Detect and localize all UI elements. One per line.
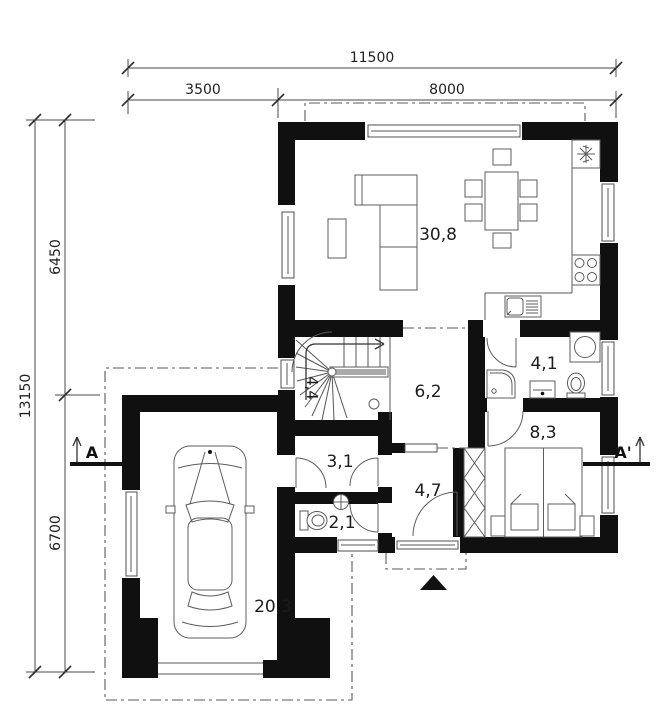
- car: [166, 446, 254, 638]
- living-room-furniture: [328, 140, 600, 320]
- entrance-arrow: [420, 575, 447, 590]
- kitchen-sink: [505, 296, 541, 317]
- wash-basin: [333, 494, 349, 510]
- window-kitchen-east: [602, 184, 614, 241]
- chair: [493, 149, 511, 165]
- pillow: [548, 504, 575, 530]
- floor-plan-canvas: 11500 3500 8000 13150 6450 6700: [0, 0, 656, 720]
- window-stairs-west: [281, 360, 294, 388]
- bath-sink: [530, 381, 555, 398]
- chair: [493, 233, 511, 248]
- toilet-wc: [300, 511, 327, 530]
- nightstand: [580, 516, 594, 536]
- room-label-bedroom: 8,3: [529, 423, 556, 443]
- stair-handrail: [328, 367, 388, 377]
- room-label-utility: 3,1: [326, 452, 353, 472]
- coffee-table: [328, 219, 346, 258]
- dim-top-seg-2: 8000: [429, 82, 465, 98]
- bedroom-furniture: [464, 448, 594, 537]
- room-label-hall: 6,2: [414, 382, 441, 402]
- room-label-bathroom: 4,1: [530, 354, 557, 374]
- chair: [520, 180, 537, 197]
- dim-top-seg-1: 3500: [185, 82, 221, 98]
- sofa: [355, 175, 417, 290]
- porch-outline: [386, 553, 466, 569]
- floor-plan-drawing: 11500 3500 8000 13150 6450 6700: [0, 0, 656, 720]
- dining-set: [465, 149, 537, 248]
- window-living-west: [282, 212, 294, 278]
- chair: [465, 180, 482, 197]
- side-mirror: [166, 506, 175, 513]
- stair-newel-post: [369, 399, 379, 409]
- room-label-living: 30,8: [419, 225, 457, 245]
- dim-left-total: 13150: [18, 374, 34, 419]
- section-label-a: A: [86, 443, 99, 462]
- dim-left-seg-1: 6450: [48, 239, 64, 275]
- toilet-bathroom: [567, 373, 585, 398]
- room-label-stairs: 4,4: [303, 376, 321, 400]
- side-mirror: [245, 506, 254, 513]
- wardrobe: [464, 448, 485, 537]
- door-utility-from-garage: [296, 458, 326, 488]
- double-bed: [505, 448, 582, 537]
- room-label-vestibule: 4,7: [414, 481, 441, 501]
- window-north: [368, 125, 520, 137]
- window-bath-east: [602, 342, 614, 395]
- room-label-wc: 2,1: [328, 513, 355, 533]
- washing-machine: [570, 332, 600, 362]
- door-bedroom: [488, 411, 523, 446]
- section-label-a-prime: A': [614, 443, 631, 462]
- pillow: [511, 504, 538, 530]
- chair: [465, 204, 482, 221]
- dining-table: [485, 172, 518, 230]
- fridge-icon: [572, 140, 600, 168]
- door-bathroom: [487, 338, 516, 367]
- nightstand: [491, 516, 505, 536]
- roof-outline: [305, 103, 585, 121]
- shower: [487, 370, 515, 398]
- dim-top-total: 11500: [350, 50, 395, 66]
- stove: [572, 255, 600, 285]
- dim-left-seg-2: 6700: [48, 515, 64, 551]
- chair: [520, 204, 537, 221]
- section-marker-a: A: [70, 437, 128, 464]
- window-garage-west: [126, 492, 137, 576]
- room-label-garage: 20,3: [254, 597, 292, 617]
- garage-door: [158, 663, 263, 674]
- window-wc-south: [338, 540, 378, 551]
- door-utility-from-vestibule: [350, 458, 378, 486]
